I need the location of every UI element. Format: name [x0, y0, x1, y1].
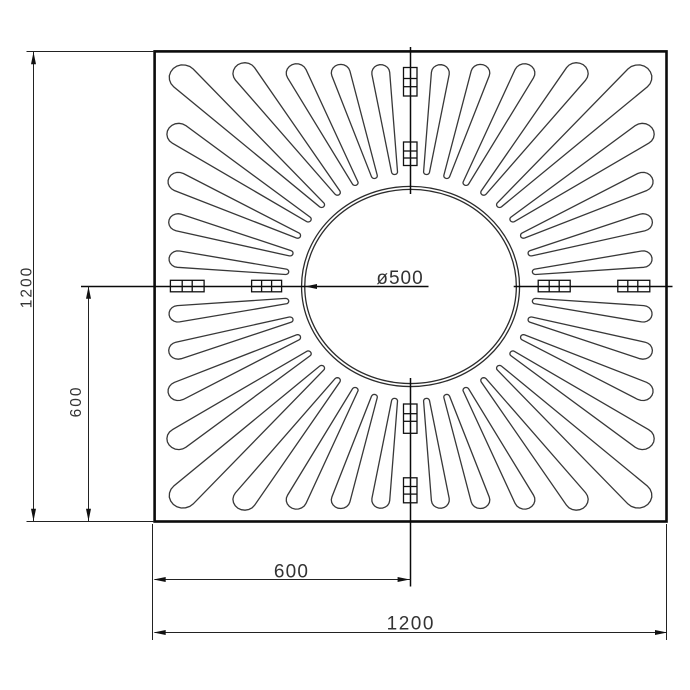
svg-text:1200: 1200 — [18, 266, 35, 308]
svg-text:600: 600 — [274, 561, 309, 582]
svg-text:600: 600 — [68, 385, 85, 417]
svg-text:1200: 1200 — [387, 613, 435, 634]
svg-text:ø500: ø500 — [376, 268, 423, 289]
